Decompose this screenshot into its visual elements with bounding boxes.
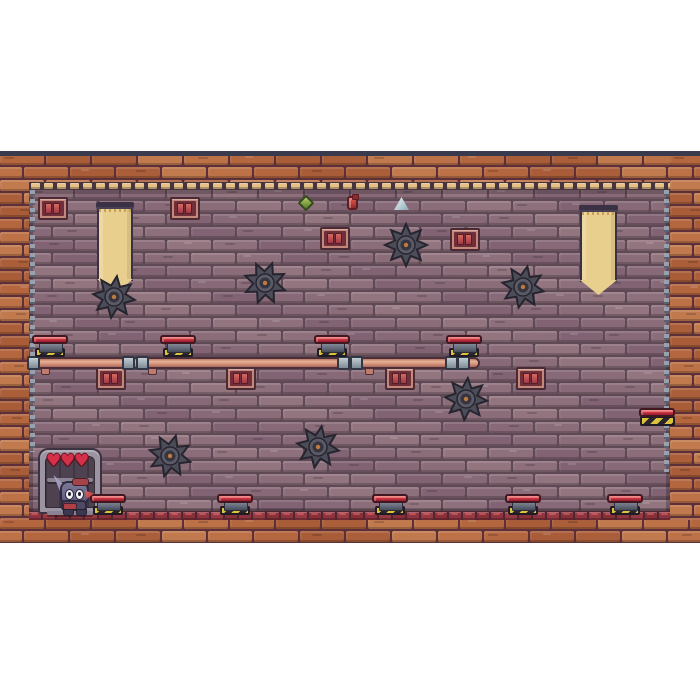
trim-red-highlight bbox=[311, 513, 318, 515]
pipe-valve-tab bbox=[41, 368, 50, 375]
window-curtain-bar bbox=[53, 203, 60, 214]
wall-plank bbox=[351, 292, 395, 303]
wall-plank bbox=[283, 279, 327, 290]
wall-plank bbox=[535, 474, 579, 485]
wall-plank bbox=[305, 190, 349, 199]
wall-plank bbox=[397, 396, 441, 407]
border-brick bbox=[300, 167, 344, 178]
border-brick bbox=[0, 245, 22, 256]
border-brick bbox=[670, 492, 700, 503]
border-brick bbox=[322, 156, 366, 165]
border-brick bbox=[162, 167, 206, 178]
wall-plank-mark bbox=[217, 451, 227, 453]
border-brick-mark bbox=[20, 209, 29, 211]
trim-cream-block bbox=[564, 183, 573, 189]
trim-red-highlight bbox=[199, 513, 206, 515]
wall-platform-hazard bbox=[640, 416, 675, 426]
top-trim-row bbox=[29, 182, 670, 190]
trim-cream-block bbox=[369, 183, 378, 189]
border-brick bbox=[622, 531, 666, 542]
border-brick bbox=[46, 520, 90, 529]
saw-blade-hazard bbox=[499, 263, 547, 311]
wall-plank bbox=[145, 279, 189, 290]
trim-red-block bbox=[351, 512, 363, 520]
wall-plank bbox=[443, 448, 487, 459]
wall-plank-mark bbox=[270, 450, 278, 452]
border-brick-mark bbox=[374, 521, 384, 523]
wall-plank bbox=[535, 240, 579, 251]
border-brick bbox=[392, 167, 436, 178]
border-brick bbox=[622, 167, 666, 178]
border-brick bbox=[184, 156, 228, 165]
wall-plank bbox=[191, 409, 235, 420]
border-brick bbox=[0, 440, 29, 451]
border-brick bbox=[506, 520, 550, 529]
wall-plank bbox=[581, 396, 625, 407]
wall-plank bbox=[53, 383, 97, 394]
trim-red-block bbox=[127, 512, 139, 520]
wall-plank-mark bbox=[67, 230, 77, 232]
window-curtain-bar bbox=[241, 373, 248, 384]
border-brick bbox=[670, 167, 692, 178]
trim-cream-block bbox=[486, 183, 495, 189]
wall-plank bbox=[237, 461, 281, 472]
trim-cream-block bbox=[642, 183, 651, 189]
wall-plank bbox=[75, 422, 119, 433]
window-inner bbox=[174, 201, 196, 216]
trim-red-block bbox=[547, 512, 559, 520]
wall-plank-mark bbox=[392, 307, 400, 309]
trim-red-highlight bbox=[591, 513, 598, 515]
window-decoration bbox=[96, 367, 126, 390]
wall-plank-mark bbox=[415, 347, 425, 349]
wall-plank-mark bbox=[362, 268, 370, 270]
wall-plank bbox=[29, 240, 73, 251]
trim-cream-block bbox=[44, 183, 53, 189]
trim-red-block bbox=[407, 512, 419, 520]
wall-plank bbox=[99, 331, 143, 342]
border-brick bbox=[392, 531, 436, 542]
trim-red-block bbox=[295, 512, 307, 520]
border-brick bbox=[670, 180, 700, 191]
trim-red-block bbox=[169, 512, 181, 520]
chain-decoration bbox=[664, 190, 669, 472]
wall-plank bbox=[489, 448, 533, 459]
border-brick bbox=[208, 167, 252, 178]
border-brick bbox=[670, 156, 700, 165]
wall-plank bbox=[581, 422, 625, 433]
wall-platform-cap bbox=[639, 408, 675, 417]
border-brick bbox=[254, 531, 298, 542]
wall-plank-mark bbox=[570, 333, 578, 335]
flask-neck bbox=[352, 194, 359, 200]
wall-plank bbox=[191, 279, 235, 290]
wall-plank bbox=[145, 253, 189, 264]
piston-red-cap bbox=[314, 335, 350, 344]
wall-plank bbox=[305, 474, 349, 485]
wall-plank bbox=[259, 500, 303, 511]
border-brick bbox=[0, 531, 22, 542]
wall-plank-mark bbox=[49, 243, 59, 245]
wall-plank-mark bbox=[272, 320, 280, 322]
border-brick bbox=[0, 401, 22, 412]
wall-plank-mark bbox=[625, 386, 635, 388]
trim-cream-block bbox=[538, 183, 547, 189]
trim-cream-block bbox=[590, 183, 599, 189]
wall-plank bbox=[145, 227, 189, 238]
window-curtain-bar bbox=[233, 373, 240, 384]
trim-cream-block bbox=[356, 183, 365, 189]
border-brick bbox=[460, 156, 504, 165]
border-brick bbox=[0, 362, 29, 373]
border-brick bbox=[116, 531, 160, 542]
piston-red-cap bbox=[217, 494, 253, 503]
wall-plank bbox=[351, 422, 395, 433]
wall-plank bbox=[467, 461, 511, 472]
border-brick-mark bbox=[568, 521, 578, 523]
wall-plank-mark bbox=[411, 451, 421, 453]
trim-red-block bbox=[155, 512, 167, 520]
wall-plank-mark bbox=[587, 451, 597, 453]
border-brick bbox=[670, 271, 692, 282]
wall-plank bbox=[75, 396, 119, 407]
wall-plank bbox=[351, 448, 395, 459]
trim-red-block bbox=[421, 512, 433, 520]
wall-plank-mark bbox=[409, 503, 419, 505]
border-brick-mark bbox=[198, 157, 208, 159]
wall-plank bbox=[535, 214, 579, 225]
wall-plank bbox=[29, 292, 73, 303]
border-brick-mark bbox=[136, 170, 146, 172]
border-brick bbox=[690, 520, 700, 529]
border-brick bbox=[670, 375, 692, 386]
wall-plank-mark bbox=[157, 412, 167, 414]
wall-plank-mark bbox=[517, 204, 527, 206]
pipe-coupler bbox=[350, 356, 363, 370]
border-brick bbox=[670, 336, 700, 347]
wall-plank-mark bbox=[219, 399, 229, 401]
wall-plank bbox=[213, 422, 257, 433]
wall-plank-mark bbox=[554, 424, 562, 426]
trim-cream-block bbox=[135, 183, 144, 189]
wall-plank-mark bbox=[597, 191, 607, 193]
wall-plank bbox=[375, 435, 419, 446]
border-brick bbox=[670, 245, 692, 256]
wall-plank bbox=[29, 318, 73, 329]
border-brick bbox=[414, 156, 458, 165]
border-brick bbox=[694, 323, 700, 334]
border-brick-mark bbox=[468, 156, 476, 158]
trim-red-block bbox=[463, 512, 475, 520]
border-brick-mark bbox=[4, 521, 14, 523]
wall-plank bbox=[29, 396, 73, 407]
wall-plank bbox=[559, 435, 603, 446]
wall-plank bbox=[467, 435, 511, 446]
wall-plank bbox=[283, 409, 327, 420]
potion-red-flask bbox=[347, 196, 358, 210]
game-viewport[interactable]: ♥♥♥ bbox=[0, 151, 700, 543]
wall-plank bbox=[213, 190, 257, 199]
player-eye-left-pupil bbox=[68, 492, 71, 496]
border-brick bbox=[670, 505, 692, 516]
wall-plank bbox=[121, 396, 165, 407]
wall-plank-mark bbox=[591, 347, 601, 349]
wall-plank bbox=[329, 305, 373, 316]
border-brick bbox=[230, 520, 274, 529]
trim-cream-block bbox=[83, 183, 92, 189]
pipe-coupler bbox=[136, 356, 149, 370]
border-brick bbox=[670, 219, 692, 230]
border-brick-mark bbox=[688, 261, 698, 263]
wall-plank-mark bbox=[482, 255, 490, 257]
trim-red-block bbox=[449, 512, 461, 520]
trim-cream-block bbox=[161, 183, 170, 189]
wall-plank bbox=[375, 461, 419, 472]
wall-plank bbox=[167, 292, 211, 303]
wall-plank bbox=[397, 190, 441, 199]
wall-plank bbox=[581, 318, 625, 329]
wall-plank bbox=[627, 474, 670, 485]
border-brick-mark bbox=[488, 534, 498, 536]
trim-cream-block bbox=[525, 183, 534, 189]
border-brick-mark bbox=[16, 313, 26, 315]
pipe-coupler bbox=[122, 356, 135, 370]
wall-plank-mark bbox=[585, 503, 595, 505]
floor-trim-row bbox=[29, 511, 670, 520]
trim-cream-block bbox=[187, 183, 196, 189]
wall-plank bbox=[513, 227, 557, 238]
border-brick bbox=[24, 167, 29, 178]
piston-red-cap bbox=[32, 335, 68, 344]
banner-tip bbox=[580, 280, 617, 295]
trim-cream-block bbox=[499, 183, 508, 189]
wall-plank bbox=[121, 344, 165, 355]
wall-plank bbox=[29, 422, 73, 433]
wall-plank-mark bbox=[61, 386, 71, 388]
trim-red-block bbox=[183, 512, 195, 520]
trim-red-highlight bbox=[171, 513, 178, 515]
wall-plank-mark bbox=[184, 242, 192, 244]
wall-plank bbox=[121, 190, 165, 199]
wall-plank bbox=[513, 435, 557, 446]
trim-cream-block bbox=[291, 183, 300, 189]
wall-plank-mark bbox=[495, 321, 505, 323]
trim-red-block bbox=[645, 512, 657, 520]
border-brick bbox=[694, 349, 700, 360]
border-brick bbox=[438, 167, 482, 178]
wall-plank bbox=[145, 305, 189, 316]
wall-plank bbox=[259, 344, 303, 355]
wall-plank-mark bbox=[49, 320, 57, 322]
wall-plank bbox=[559, 357, 603, 368]
wall-plank-mark bbox=[253, 438, 263, 440]
border-brick bbox=[162, 531, 206, 542]
wall-plank bbox=[489, 190, 533, 199]
trim-cream-block bbox=[460, 183, 469, 189]
wall-plank bbox=[605, 305, 649, 316]
banner-top-bar bbox=[96, 202, 134, 209]
border-brick bbox=[0, 167, 22, 178]
wall-plank-mark bbox=[225, 476, 233, 478]
window-curtain-bar bbox=[177, 203, 184, 214]
wall-plank-mark bbox=[497, 190, 505, 192]
trim-red-highlight bbox=[353, 513, 360, 515]
wall-plank bbox=[167, 396, 211, 407]
border-brick-mark bbox=[312, 534, 322, 536]
trim-red-highlight bbox=[409, 513, 416, 515]
saw-blade-hazard bbox=[294, 423, 342, 471]
wall-plank bbox=[443, 292, 487, 303]
wall-plank bbox=[329, 279, 373, 290]
border-brick-mark bbox=[682, 417, 692, 419]
window-decoration bbox=[450, 228, 480, 251]
wall-plank bbox=[535, 448, 579, 459]
banner-top-bar bbox=[579, 205, 618, 212]
border-brick bbox=[0, 349, 22, 360]
border-brick-mark bbox=[674, 157, 684, 159]
wall-plank bbox=[213, 318, 257, 329]
window-inner bbox=[389, 371, 411, 386]
trim-red-highlight bbox=[339, 513, 346, 515]
wall-plank bbox=[605, 461, 649, 472]
trim-cream-block bbox=[109, 183, 118, 189]
piston-base bbox=[453, 343, 477, 353]
wall-plank bbox=[191, 331, 235, 342]
border-brick-mark bbox=[12, 417, 22, 419]
wall-plank bbox=[605, 383, 649, 394]
trim-red-highlight bbox=[451, 513, 458, 515]
wall-plank bbox=[421, 201, 465, 212]
trim-red-block bbox=[477, 512, 489, 520]
border-brick bbox=[670, 466, 700, 477]
window-inner bbox=[42, 201, 64, 216]
wall-plank bbox=[421, 279, 465, 290]
wall-plank-mark bbox=[589, 399, 599, 401]
trim-red-block bbox=[253, 512, 265, 520]
border-brick bbox=[670, 388, 700, 399]
pipe-valve-tab bbox=[365, 368, 374, 375]
wall-plank bbox=[581, 190, 625, 199]
wall-plank bbox=[397, 448, 441, 459]
trim-red-highlight bbox=[325, 513, 332, 515]
trim-red-highlight bbox=[661, 513, 668, 515]
border-brick bbox=[0, 453, 22, 464]
trim-cream-block bbox=[317, 183, 326, 189]
wall-plank bbox=[53, 227, 97, 238]
border-brick bbox=[694, 479, 700, 490]
trim-red-highlight bbox=[465, 513, 472, 515]
wall-plank-mark bbox=[413, 399, 423, 401]
trim-cream-block bbox=[343, 183, 352, 189]
trim-red-block bbox=[561, 512, 573, 520]
wall-plank bbox=[237, 201, 281, 212]
trim-cream-block bbox=[408, 183, 417, 189]
player-headband bbox=[72, 478, 89, 486]
wall-plank bbox=[581, 448, 625, 459]
window-inner bbox=[100, 371, 122, 386]
wall-plank bbox=[283, 383, 327, 394]
wall-plank bbox=[421, 461, 465, 472]
wall-plank-mark bbox=[198, 281, 206, 283]
border-brick bbox=[70, 167, 114, 178]
wall-plank bbox=[145, 487, 189, 498]
border-brick bbox=[576, 531, 620, 542]
wall-plank-mark bbox=[212, 411, 220, 413]
wall-plank bbox=[237, 435, 281, 446]
border-brick bbox=[368, 520, 412, 529]
border-brick bbox=[598, 520, 642, 529]
window-curtain-bar bbox=[335, 233, 342, 244]
wall-plank bbox=[443, 500, 487, 511]
wall-plank bbox=[259, 474, 303, 485]
border-brick bbox=[0, 505, 22, 516]
trim-cream-block bbox=[31, 183, 40, 189]
border-brick bbox=[530, 531, 574, 542]
border-brick bbox=[670, 297, 692, 308]
border-brick bbox=[0, 310, 29, 321]
wall-plank bbox=[283, 253, 327, 264]
wall-plank-mark bbox=[59, 438, 69, 440]
border-brick bbox=[694, 505, 700, 516]
wall-plank bbox=[305, 370, 349, 381]
trim-cream-block bbox=[382, 183, 391, 189]
trim-cream-block bbox=[473, 183, 482, 189]
wall-plank-mark bbox=[43, 399, 53, 401]
wall-plank bbox=[329, 409, 373, 420]
trim-red-highlight bbox=[269, 513, 276, 515]
pipe-coupler bbox=[27, 356, 40, 370]
wall-plank-mark bbox=[180, 502, 188, 504]
wall-plank bbox=[375, 305, 419, 316]
wall-plank bbox=[329, 383, 373, 394]
wall-plank-mark bbox=[319, 321, 329, 323]
wall-plank bbox=[581, 474, 625, 485]
border-brick-mark bbox=[18, 261, 28, 263]
trim-cream-block bbox=[434, 183, 443, 189]
wall-plank bbox=[259, 214, 303, 225]
border-brick bbox=[0, 193, 22, 204]
window-decoration bbox=[38, 197, 68, 220]
wall-plank bbox=[329, 253, 373, 264]
trim-cream-block bbox=[239, 183, 248, 189]
wall-plank bbox=[559, 331, 603, 342]
border-brick bbox=[138, 520, 182, 529]
wall-plank bbox=[191, 461, 235, 472]
trim-cream-block bbox=[96, 183, 105, 189]
trim-red-highlight bbox=[577, 513, 584, 515]
trim-red-highlight bbox=[255, 513, 262, 515]
wall-plank bbox=[305, 214, 349, 225]
wall-plank-mark bbox=[323, 217, 333, 219]
piston-base bbox=[321, 343, 345, 353]
wall-plank bbox=[213, 240, 257, 251]
border-brick bbox=[0, 284, 29, 295]
border-brick bbox=[92, 520, 136, 529]
window-curtain-bar bbox=[523, 373, 530, 384]
wall-plank-mark bbox=[523, 489, 531, 491]
wall-plank bbox=[397, 318, 441, 329]
window-curtain-bar bbox=[327, 233, 334, 244]
brick-border-bottom bbox=[0, 520, 700, 543]
wall-plank bbox=[513, 461, 557, 472]
border-brick bbox=[694, 245, 700, 256]
border-brick bbox=[644, 520, 688, 529]
wall-plank bbox=[237, 331, 281, 342]
wall-plank bbox=[121, 500, 165, 511]
wall-plank bbox=[421, 487, 465, 498]
border-brick bbox=[346, 167, 390, 178]
trim-cream-block bbox=[174, 183, 183, 189]
